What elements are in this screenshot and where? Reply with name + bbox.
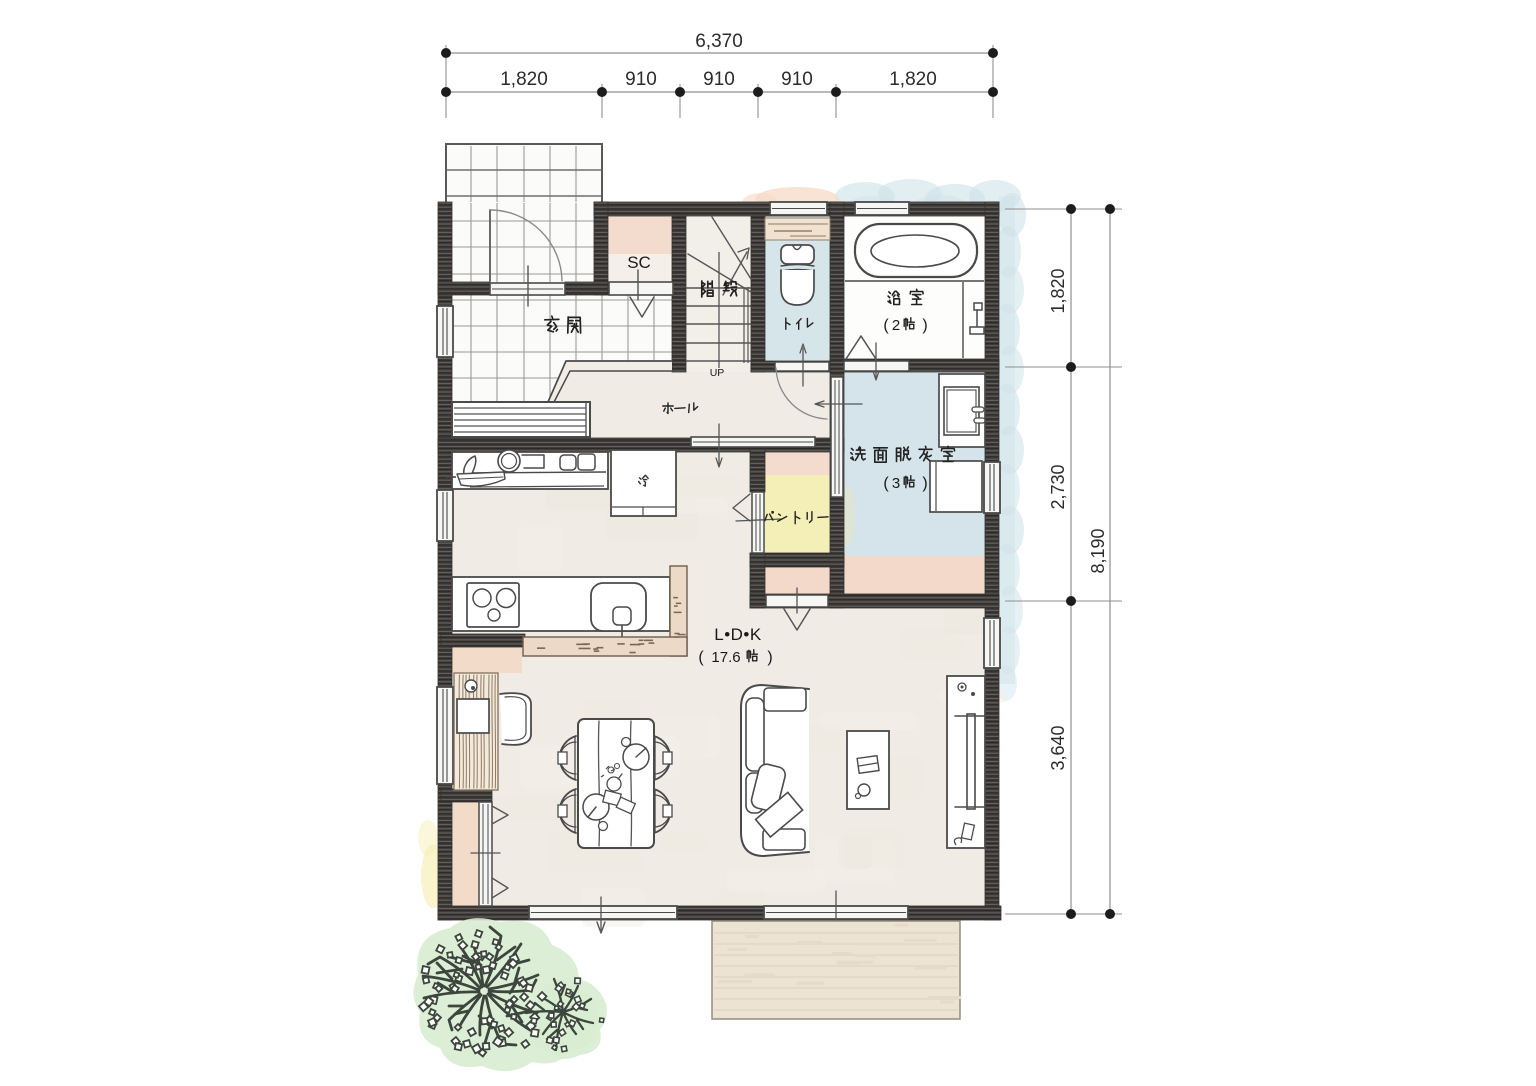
svg-text:UP: UP — [710, 367, 725, 379]
svg-text:1,820: 1,820 — [500, 69, 548, 90]
svg-text:): ) — [767, 649, 772, 666]
svg-text:910: 910 — [703, 69, 735, 90]
svg-text:3,640: 3,640 — [1048, 725, 1068, 770]
svg-text:): ) — [922, 475, 927, 492]
svg-text:(: ( — [698, 649, 704, 666]
svg-text:SC: SC — [627, 253, 651, 272]
svg-text:3: 3 — [892, 475, 900, 492]
svg-text:L•D•K: L•D•K — [714, 625, 762, 644]
svg-text:): ) — [922, 317, 927, 334]
svg-text:1,820: 1,820 — [889, 69, 937, 90]
svg-text:8,190: 8,190 — [1088, 528, 1108, 573]
svg-text:(: ( — [883, 475, 889, 492]
svg-text:(: ( — [883, 317, 889, 334]
svg-text:2,730: 2,730 — [1048, 464, 1068, 509]
svg-text:2: 2 — [892, 317, 900, 334]
svg-text:910: 910 — [625, 69, 657, 90]
svg-text:1,820: 1,820 — [1048, 268, 1068, 313]
svg-text:17.6: 17.6 — [711, 649, 740, 666]
svg-text:6,370: 6,370 — [695, 31, 743, 52]
svg-text:910: 910 — [781, 69, 813, 90]
